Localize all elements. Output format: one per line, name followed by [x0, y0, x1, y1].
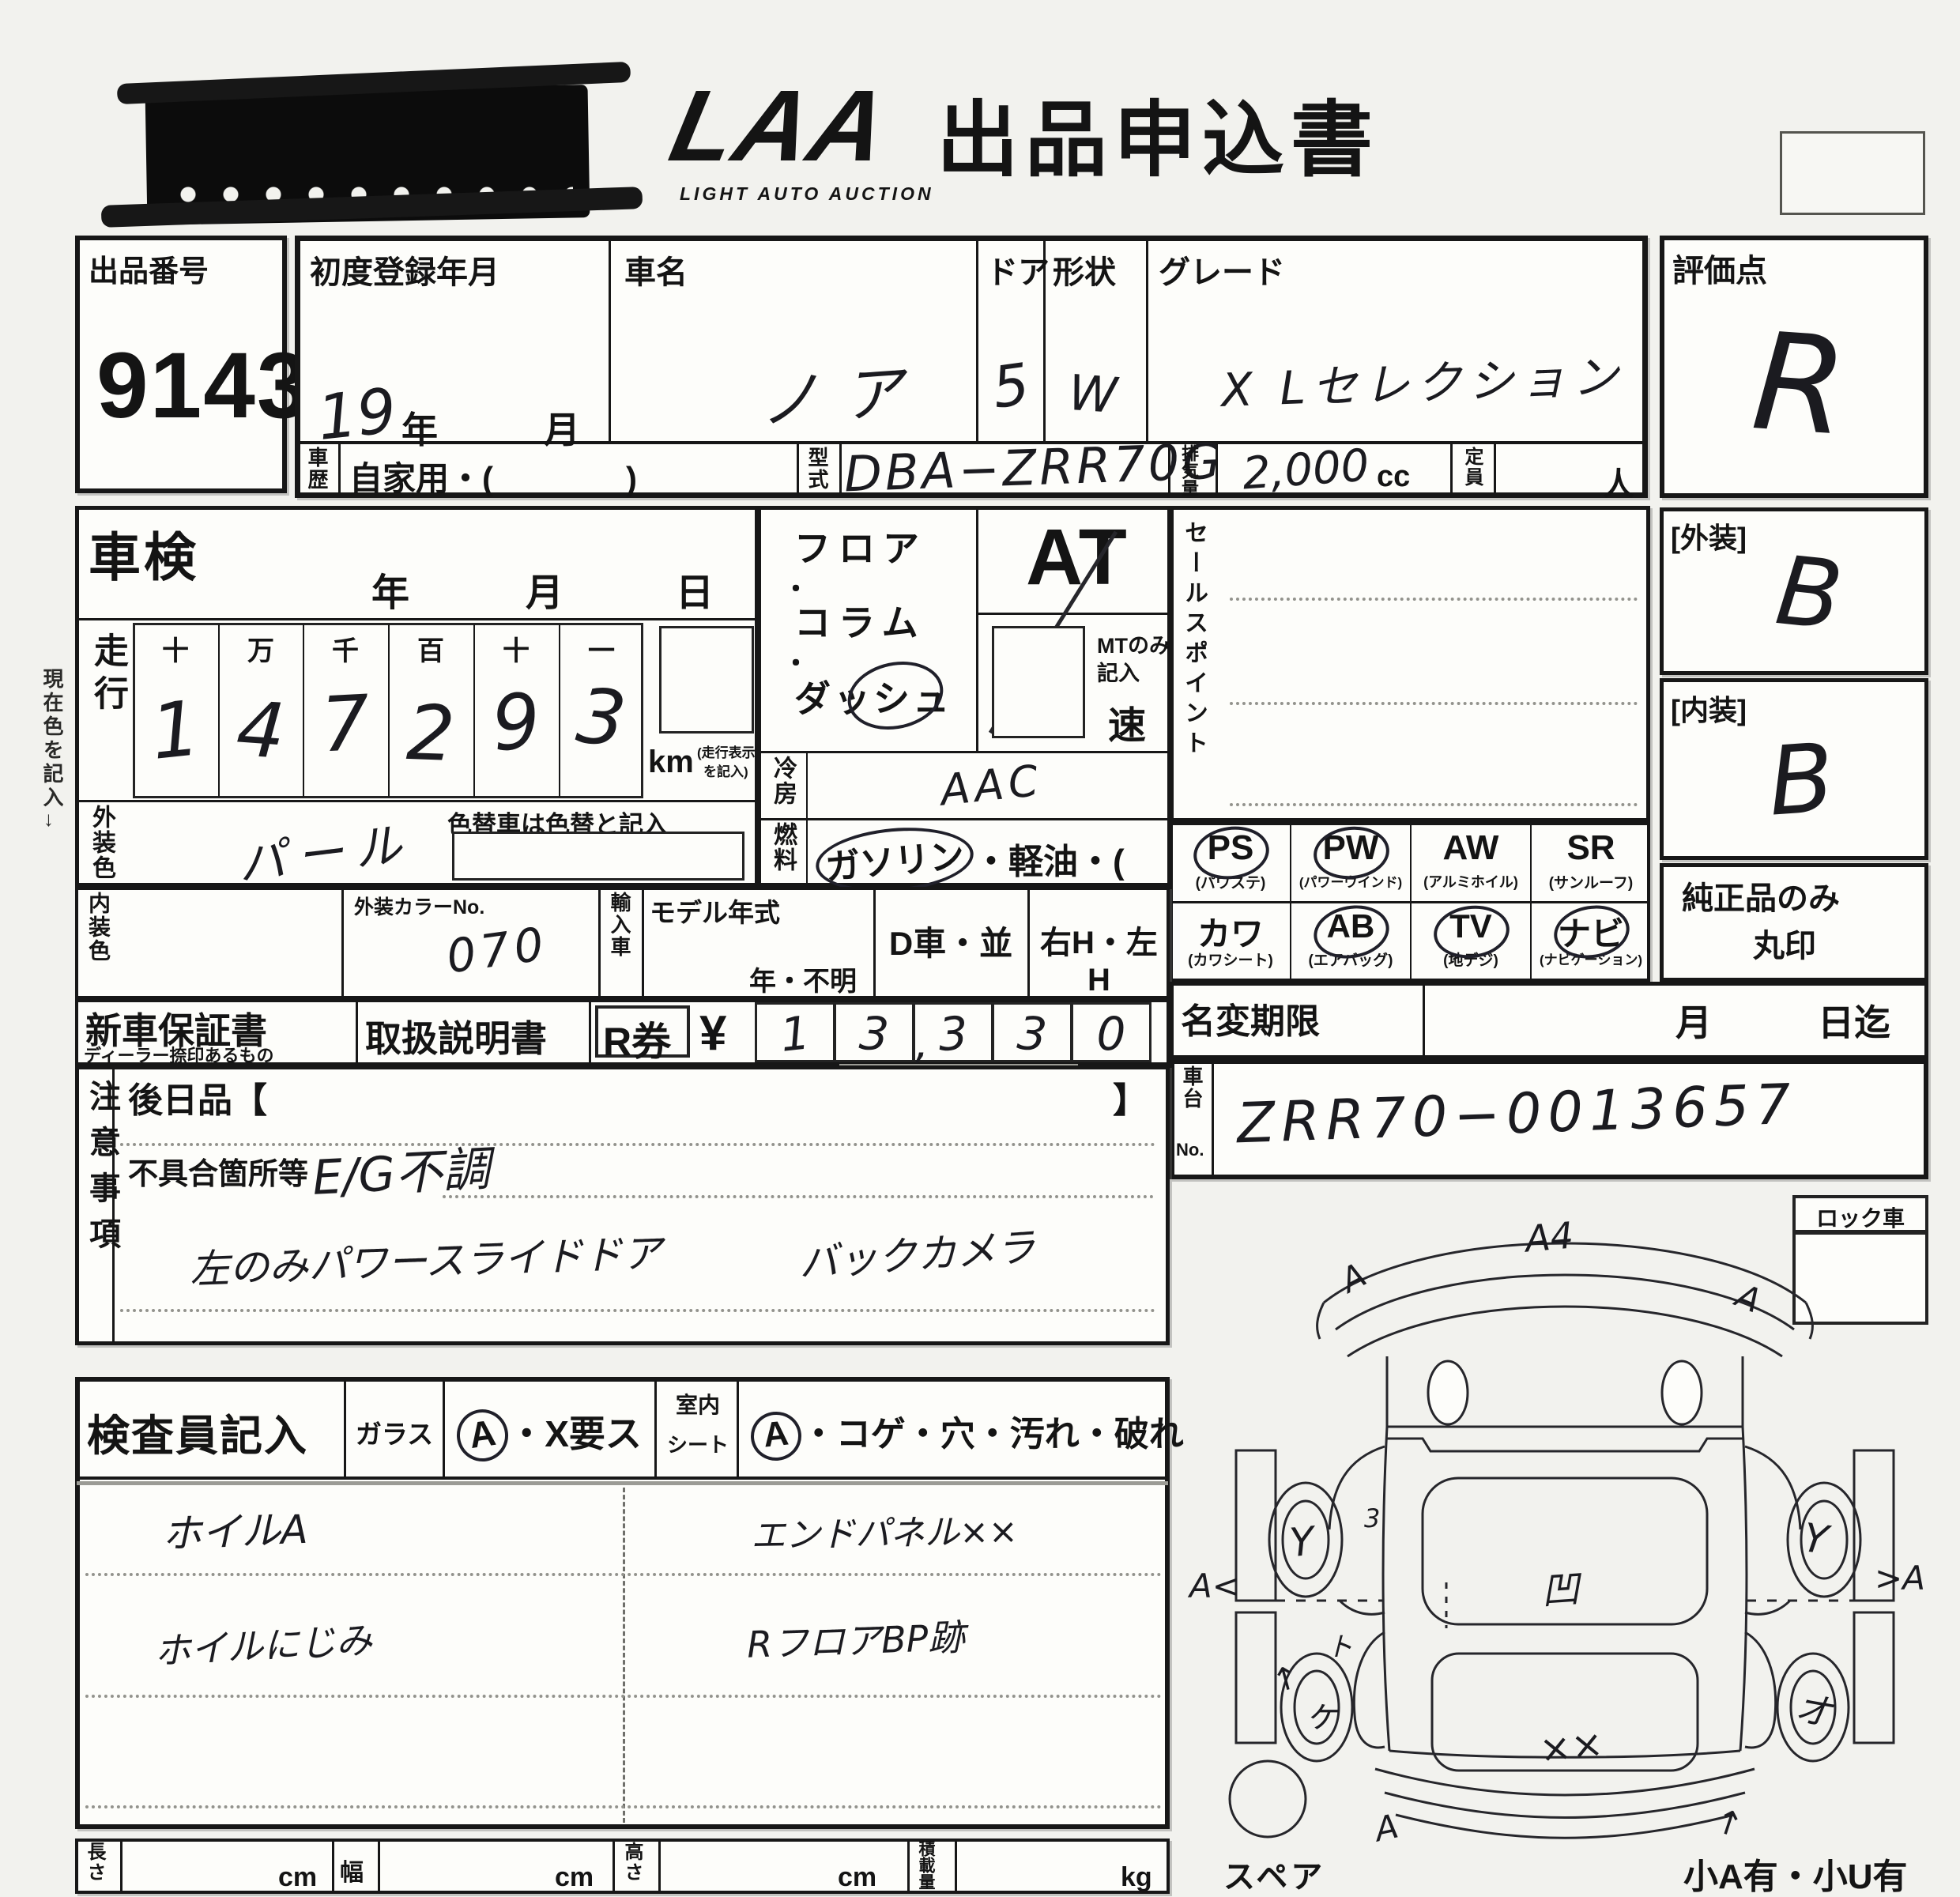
later-items-close: 】: [1113, 1072, 1148, 1122]
divider: [341, 888, 344, 998]
divider: [976, 237, 978, 443]
mileage-header: 千: [303, 629, 388, 668]
import-car-label: 輸入車: [605, 892, 635, 958]
shaken-day: 日: [676, 561, 714, 617]
width-label: 幅: [340, 1853, 364, 1888]
fuel-label: 燃料: [765, 822, 800, 873]
rename-until-suffix: 日迄: [1818, 994, 1890, 1047]
divider: [806, 752, 808, 885]
dotted-rule: [85, 1573, 1162, 1576]
seat-options-rest: ・コゲ・穴・汚れ・破れ: [801, 1415, 1184, 1454]
divider: [658, 1840, 661, 1892]
dealer-car-option: D車・並: [876, 917, 1026, 965]
mileage-unit: km: [648, 745, 694, 780]
mileage-digit: 3: [554, 669, 648, 767]
mileage-digit: 7: [300, 677, 390, 770]
load-label: 積載量: [914, 1840, 937, 1890]
divider: [907, 1840, 910, 1892]
mileage-digit: 2: [386, 688, 475, 779]
dotted-rule: [120, 1309, 1155, 1312]
length-label: 長さ: [81, 1842, 108, 1883]
divider: [609, 237, 611, 443]
rticket-digit: 0: [1071, 1007, 1151, 1061]
equip-aw: AW: [1412, 828, 1530, 868]
later-items-label: 後日品【: [128, 1072, 267, 1122]
rating-label: 評価点: [1672, 245, 1767, 291]
sales-point-label: セールスポイント: [1176, 520, 1211, 760]
glass-label: ガラス: [346, 1413, 443, 1451]
shaken-label: 車検: [89, 515, 199, 591]
damage-mark: 凹: [1540, 1557, 1581, 1615]
notes-label: 注意事項: [79, 1080, 125, 1263]
divider: [378, 1840, 380, 1892]
damage-mark: >A: [1875, 1559, 1925, 1597]
sales-point-box: [1170, 506, 1650, 822]
displacement-value: 2,000: [1241, 439, 1370, 500]
mt-note-line1: MTのみ: [1097, 628, 1170, 659]
height-unit: cm: [838, 1862, 876, 1893]
mileage-header: 十: [133, 629, 218, 668]
seat-a-circled-mark: A: [748, 1409, 804, 1463]
shaken-year: 年: [371, 561, 409, 617]
inspector-label: 検査員記入: [87, 1401, 308, 1463]
interior-rating-label: [内装]: [1671, 688, 1747, 729]
first-reg-value: 19: [315, 375, 400, 454]
damage-mark: ××: [1537, 1722, 1605, 1772]
divider: [737, 1378, 739, 1478]
genuine-parts-note-line2: 丸印: [1753, 920, 1816, 966]
dotted-rule: [1230, 598, 1638, 601]
divider: [443, 1378, 445, 1478]
divider: [589, 1001, 591, 1064]
divider: [338, 443, 341, 496]
mileage-mark-box: [659, 626, 754, 734]
divider: [612, 1840, 615, 1892]
rename-month-suffix: 月: [1675, 994, 1712, 1047]
first-reg-year-suffix: 年: [401, 402, 438, 454]
warranty-sub: ディーラー捺印あるもの: [84, 1042, 273, 1067]
divider: [642, 888, 644, 998]
divider: [978, 613, 1170, 615]
shape-label: 形状: [1053, 247, 1116, 292]
ext-color-label: 外装色: [84, 805, 119, 881]
divider: [120, 1840, 122, 1892]
int-color-label: 内装色: [82, 892, 114, 963]
shaken-month: 月: [526, 561, 563, 617]
ext-color-no-label: 外装カラーNo.: [354, 892, 484, 920]
mt-note-line2: 記入: [1097, 656, 1140, 687]
shift-floor: フロア: [794, 520, 927, 572]
capacity-unit: 人: [1603, 458, 1634, 504]
handle-option: 右H・左H: [1030, 917, 1168, 998]
equip-kawa-sub: (カワシート): [1171, 948, 1290, 970]
dotted-rule: [1230, 803, 1638, 806]
divider: [1212, 1061, 1214, 1176]
dotted-rule: [1230, 702, 1638, 705]
chassis-label: 車台: [1178, 1065, 1207, 1110]
rticket-digit: 1: [752, 1003, 839, 1065]
auction-sheet-scan: LAA LIGHT AUTO AUCTION 出品申込書 出品番号 9143 初…: [0, 0, 1960, 1897]
dotted-rule: [85, 1805, 1162, 1808]
equip-aw-sub: (アルミホイル): [1412, 871, 1530, 892]
exterior-rating-label: [外装]: [1671, 515, 1747, 556]
door-label: ドア: [986, 247, 1050, 292]
history-label: 車歴: [303, 447, 332, 491]
divider: [839, 443, 842, 496]
manual-label: 取扱説明書: [365, 1010, 547, 1062]
first-reg-month-suffix: 月: [544, 402, 580, 454]
damage-mark: 3: [1364, 1503, 1380, 1533]
height-label: 高さ: [618, 1842, 646, 1883]
first-reg-label: 初度登録年月: [310, 247, 499, 292]
divider: [797, 443, 799, 496]
dotted-rule: [443, 1195, 1154, 1198]
divider: [1450, 443, 1453, 496]
model-code-label: 型式: [803, 447, 832, 491]
load-unit: kg: [1121, 1862, 1152, 1893]
corner-box: [1780, 131, 1925, 215]
inspector-note-wheel-a: ホイルA: [161, 1498, 309, 1559]
ac-label: 冷房: [765, 756, 800, 806]
divider: [759, 818, 1170, 820]
divider: [77, 618, 757, 620]
rticket-label: R券: [603, 1010, 671, 1067]
auction-no-value: 9143: [96, 332, 311, 439]
car-name-label: 車名: [624, 247, 688, 292]
capacity-label: 定員: [1458, 447, 1486, 488]
mileage-digit: 1: [128, 682, 222, 779]
displacement-unit: cc: [1377, 460, 1410, 494]
inspector-center-divider: [623, 1488, 625, 1823]
page-title: 出品申込書: [937, 73, 1379, 192]
cabin-seat-label-line1: 室内: [661, 1388, 735, 1420]
mileage-label: 走行: [82, 632, 133, 718]
damage-mark: Y: [1288, 1518, 1316, 1566]
history-value: 自家用・( ): [349, 452, 637, 500]
seat-options: A・コゲ・穴・汚れ・破れ: [751, 1405, 1184, 1461]
repaint-box: [452, 832, 744, 881]
rticket-comma: ,: [915, 1018, 929, 1068]
speed-suffix: 速: [1108, 694, 1146, 749]
divider: [955, 1840, 957, 1892]
divider: [598, 888, 601, 998]
cabin-seat-label-line2: シート: [661, 1429, 735, 1458]
divider: [1494, 443, 1496, 496]
mileage-digit: 4: [215, 683, 307, 777]
glass-options-rest: ・X要ス: [508, 1413, 642, 1454]
inspector-note-end-panel: エンドパネル××: [750, 1503, 1018, 1558]
exterior-rating-value: B: [1771, 536, 1847, 652]
mt-speed-box: [992, 626, 1085, 738]
interior-rating-value: B: [1765, 723, 1837, 837]
divider: [356, 1001, 358, 1064]
defects-label: 不具合箇所等: [128, 1149, 308, 1193]
mileage-header: 万: [218, 629, 303, 668]
rticket-digit: 3: [989, 1004, 1075, 1065]
ac-value: AAC: [938, 755, 1045, 815]
width-unit: cm: [555, 1862, 594, 1893]
grade-label: グレード: [1159, 247, 1285, 292]
divider: [1423, 983, 1425, 1058]
mileage-header: 十: [473, 629, 559, 668]
damage-mark: A<: [1189, 1567, 1240, 1605]
length-unit: cm: [278, 1862, 317, 1893]
model-year-label: モデル年式: [650, 892, 780, 930]
damage-mark: ヶ: [1304, 1685, 1340, 1737]
spare-tire-label: スペア: [1223, 1851, 1325, 1897]
shape-value: W: [1067, 364, 1119, 424]
glass-options: A・X要ス: [457, 1405, 642, 1461]
chassis-no-label: No.: [1176, 1140, 1204, 1160]
divider: [976, 507, 978, 751]
divider: [332, 1840, 334, 1892]
scan-line: [77, 1481, 1168, 1485]
yen-symbol: ¥: [699, 1005, 726, 1062]
damage-mark: ト: [1326, 1625, 1353, 1664]
rticket-digit: 3: [832, 1005, 916, 1064]
divider: [654, 1378, 657, 1478]
displacement-label: 排気量: [1176, 444, 1201, 496]
divider: [759, 751, 1170, 753]
mileage-header: 百: [388, 629, 473, 668]
laa-logo-subtitle: LIGHT AUTO AUCTION: [680, 183, 934, 205]
divider: [77, 800, 757, 802]
glass-a-circled-mark: A: [454, 1406, 512, 1465]
genuine-parts-note-line1: 純正品のみ: [1682, 873, 1840, 918]
small-damage-note: 小A有・小U有: [1683, 1848, 1908, 1897]
mileage-note-line2: を記入): [703, 760, 748, 780]
shift-column: コラム: [794, 594, 926, 647]
divider: [77, 1476, 1168, 1480]
grade-value: X Lセレクション: [1220, 339, 1626, 420]
laa-logo: LAA: [661, 68, 898, 184]
mileage-header: 一: [559, 629, 644, 668]
rename-deadline-label: 名変期限: [1181, 993, 1320, 1043]
divider: [1146, 237, 1148, 443]
dotted-rule: [120, 1143, 1155, 1146]
car-name-value: ノア: [756, 342, 929, 441]
mileage-digit: 9: [469, 675, 562, 771]
current-color-note: 現在色を記入→: [38, 668, 67, 834]
model-year-unknown: 年・不明: [749, 960, 857, 998]
equip-sr-sub: (サンルーフ): [1532, 871, 1650, 892]
auction-no-label: 出品番号: [89, 247, 209, 290]
dotted-rule: [85, 1695, 1162, 1698]
rating-value: R: [1747, 304, 1852, 466]
damage-mark: A4: [1524, 1213, 1575, 1260]
equip-sr: SR: [1532, 828, 1650, 868]
inspector-note-r-floor: RフロアBP跡: [746, 1608, 965, 1669]
